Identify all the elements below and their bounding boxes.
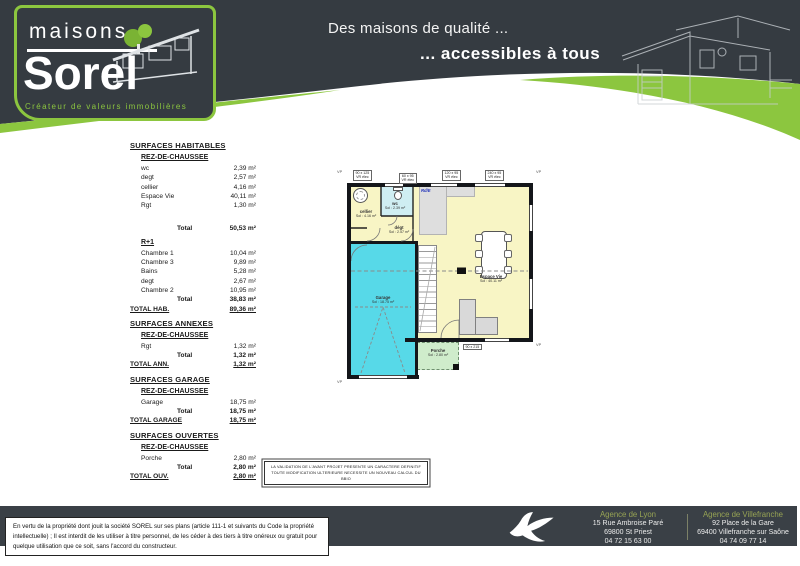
room-area: Sol : 18.75 m² xyxy=(359,300,407,304)
window xyxy=(431,183,457,187)
corner-mark: VP xyxy=(536,170,541,174)
section-marker xyxy=(457,268,466,275)
table-row: Garage18,75 m² xyxy=(128,398,268,407)
blue-annotation: Rd/E xyxy=(421,188,431,193)
note-box: LA VALIDATION DE L'AVANT PROJET PRESENTE… xyxy=(264,461,428,485)
row-label: wc xyxy=(141,164,149,173)
section-title-ouvertes: SURFACES OUVERTES xyxy=(130,431,268,440)
table-row: cellier4,16 m² xyxy=(128,183,268,192)
wall-bottom-main xyxy=(405,338,533,342)
window xyxy=(529,205,533,231)
row-value: 1,30 m² xyxy=(234,201,256,210)
row-label: Rgt xyxy=(141,342,151,351)
row-label: cellier xyxy=(141,183,158,192)
table-row: Porche2,80 m² xyxy=(128,454,268,463)
dim-label: 120 x 95 VR élec xyxy=(442,170,461,181)
corner-mark: VP xyxy=(536,343,541,347)
table-row: degt2,57 m² xyxy=(128,173,268,182)
row-value: 40,11 m² xyxy=(230,192,256,201)
agency-name: Agence de Lyon xyxy=(572,510,684,519)
grand-total-label: TOTAL HAB. xyxy=(130,305,169,314)
grand-total-value: 1,32 m² xyxy=(233,360,256,369)
room-label-degt: dégt Sol : 2.57 m² xyxy=(385,225,413,234)
dim-label: 60 x 95 VR élec xyxy=(399,173,417,184)
legal-box: En vertu de la propriété dont jouit la s… xyxy=(5,517,329,556)
note-line-2: TOUTE MODIFICATION ULTERIEURE NECESSITE … xyxy=(267,470,425,482)
total-row: Total18,75 m² xyxy=(128,407,268,416)
room-area: Sol : 2.39 m² xyxy=(383,206,407,210)
grand-total-value: 2,80 m² xyxy=(233,472,256,481)
dashed-lines xyxy=(351,271,528,373)
agency-divider xyxy=(687,514,688,540)
total-row: Total50,53 m² xyxy=(128,224,268,233)
total-label: Total xyxy=(177,351,192,360)
subtitle-r1: R+1 xyxy=(141,239,268,246)
logo-box: maisons Sorel Créateur de valeurs immobi… xyxy=(14,5,216,121)
grand-total-row: TOTAL HAB.89,36 m² xyxy=(128,305,268,314)
total-value: 50,53 m² xyxy=(230,224,256,233)
page: { "colors": { "accent_green": "#8cc63f",… xyxy=(0,0,800,566)
row-label: Chambre 1 xyxy=(141,249,174,258)
grand-total-value: 89,36 m² xyxy=(230,305,256,314)
row-value: 2,67 m² xyxy=(234,277,256,286)
agency-city: 69800 St Priest xyxy=(572,529,684,538)
total-value: 2,80 m² xyxy=(233,463,256,472)
total-row: Total2,80 m² xyxy=(128,463,268,472)
total-label: Total xyxy=(177,295,192,304)
grand-total-label: TOTAL OUV. xyxy=(130,472,169,481)
room-area: Sol : 4.16 m² xyxy=(351,214,381,218)
stairs-diagonal xyxy=(420,247,435,331)
agency-phone: 04 72 15 63 00 xyxy=(572,538,684,547)
grand-total-label: TOTAL ANN. xyxy=(130,360,169,369)
room-label-cellier: cellier Sol : 4.16 m² xyxy=(351,209,381,218)
total-row: Total1,32 m² xyxy=(128,351,268,360)
bird-logo-icon xyxy=(505,510,561,544)
window xyxy=(475,183,505,187)
row-label: degt xyxy=(141,277,154,286)
table-row: Chambre 210,95 m² xyxy=(128,286,268,295)
corner-mark: VP xyxy=(337,380,342,384)
table-row: Rgt1,30 m² xyxy=(128,201,268,210)
agency-name: Agence de Villefranche xyxy=(690,510,796,519)
spacer xyxy=(128,210,268,224)
row-value: 2,57 m² xyxy=(234,173,256,182)
slogan-line-1: Des maisons de qualité ... xyxy=(328,20,508,37)
subtitle-rdc: REZ-DE-CHAUSSEE xyxy=(141,444,268,451)
total-value: 38,83 m² xyxy=(230,295,256,304)
table-row: Rgt1,32 m² xyxy=(128,342,268,351)
agency-phone: 04 74 09 77 14 xyxy=(690,538,796,547)
total-value: 1,32 m² xyxy=(233,351,256,360)
room-label-espace-vie: Espace Vie Sol : 40.11 m² xyxy=(467,274,515,283)
floor-plan: 90 x 125 VR élec 60 x 95 VR élec 120 x 9… xyxy=(347,183,533,379)
logo-tagline: Créateur de valeurs immobilières xyxy=(25,102,187,111)
section-title-garage: SURFACES GARAGE xyxy=(130,375,268,384)
row-value: 2,39 m² xyxy=(234,164,256,173)
row-value: 4,16 m² xyxy=(234,183,256,192)
table-row: Chambre 110,04 m² xyxy=(128,249,268,258)
table-row: degt2,67 m² xyxy=(128,277,268,286)
row-label: Chambre 3 xyxy=(141,258,174,267)
table-row: Chambre 39,89 m² xyxy=(128,258,268,267)
row-value: 1,32 m² xyxy=(234,342,256,351)
header: maisons Sorel Créateur de valeurs immobi… xyxy=(0,0,800,150)
row-label: Porche xyxy=(141,454,162,463)
subtitle-rdc: REZ-DE-CHAUSSEE xyxy=(141,388,268,395)
room-label-garage: Garage Sol : 18.75 m² xyxy=(359,295,407,304)
row-value: 10,95 m² xyxy=(230,286,256,295)
room-area: Sol : 2.57 m² xyxy=(385,230,413,234)
surfaces-panel: SURFACES HABITABLES REZ-DE-CHAUSSEE wc2,… xyxy=(128,136,268,482)
window xyxy=(529,279,533,309)
table-row: Bains5,28 m² xyxy=(128,267,268,276)
row-value: 2,80 m² xyxy=(234,454,256,463)
row-label: Bains xyxy=(141,267,158,276)
section-title-annexes: SURFACES ANNEXES xyxy=(130,319,268,328)
garage-door xyxy=(359,375,407,379)
corner-mark: VP xyxy=(337,170,342,174)
section-title-habitables: SURFACES HABITABLES xyxy=(130,141,268,150)
total-label: Total xyxy=(177,463,192,472)
grand-total-label: TOTAL GARAGE xyxy=(130,416,182,425)
row-label: Garage xyxy=(141,398,163,407)
table-row: wc2,39 m² xyxy=(128,164,268,173)
subtitle-rdc: REZ-DE-CHAUSSEE xyxy=(141,154,268,161)
subtitle-rdc: REZ-DE-CHAUSSEE xyxy=(141,332,268,339)
slogan-line-2: ... accessibles à tous xyxy=(420,44,600,64)
grand-total-row: TOTAL OUV.2,80 m² xyxy=(128,472,268,481)
room-area: Sol : 2.80 m² xyxy=(419,353,457,357)
logo-sorel-text: Sorel xyxy=(23,46,138,100)
grand-total-row: TOTAL GARAGE18,75 m² xyxy=(128,416,268,425)
row-label: Rgt xyxy=(141,201,151,210)
total-value: 18,75 m² xyxy=(230,407,256,416)
grand-total-value: 18,75 m² xyxy=(230,416,256,425)
dim-label: 90 x 125 VR élec xyxy=(353,170,372,181)
total-label: Total xyxy=(177,224,192,233)
row-value: 9,89 m² xyxy=(234,258,256,267)
agency-address: 92 Place de la Gare xyxy=(690,520,796,529)
agency-address: 15 Rue Ambroise Paré xyxy=(572,520,684,529)
grand-total-row: TOTAL ANN.1,32 m² xyxy=(128,360,268,369)
agency-villefranche: Agence de Villefranche 92 Place de la Ga… xyxy=(690,510,796,546)
row-label: degt xyxy=(141,173,154,182)
row-label: Chambre 2 xyxy=(141,286,174,295)
dim-label: 240 x 95 VR élec xyxy=(485,170,504,181)
dim-label: 90 x 215 xyxy=(463,344,482,350)
window xyxy=(485,338,509,342)
row-label: Espace Vie xyxy=(141,192,174,201)
total-label: Total xyxy=(177,407,192,416)
room-label-wc: wc Sol : 2.39 m² xyxy=(383,201,407,210)
row-value: 10,04 m² xyxy=(230,249,256,258)
room-label-porche: Porche Sol : 2.80 m² xyxy=(419,348,457,357)
table-row: Espace Vie40,11 m² xyxy=(128,192,268,201)
room-area: Sol : 40.11 m² xyxy=(467,279,515,283)
agency-lyon: Agence de Lyon 15 Rue Ambroise Paré 6980… xyxy=(572,510,684,546)
agency-city: 69400 Villefranche sur Saône xyxy=(690,529,796,538)
total-row: Total38,83 m² xyxy=(128,295,268,304)
row-value: 18,75 m² xyxy=(230,398,256,407)
row-value: 5,28 m² xyxy=(234,267,256,276)
